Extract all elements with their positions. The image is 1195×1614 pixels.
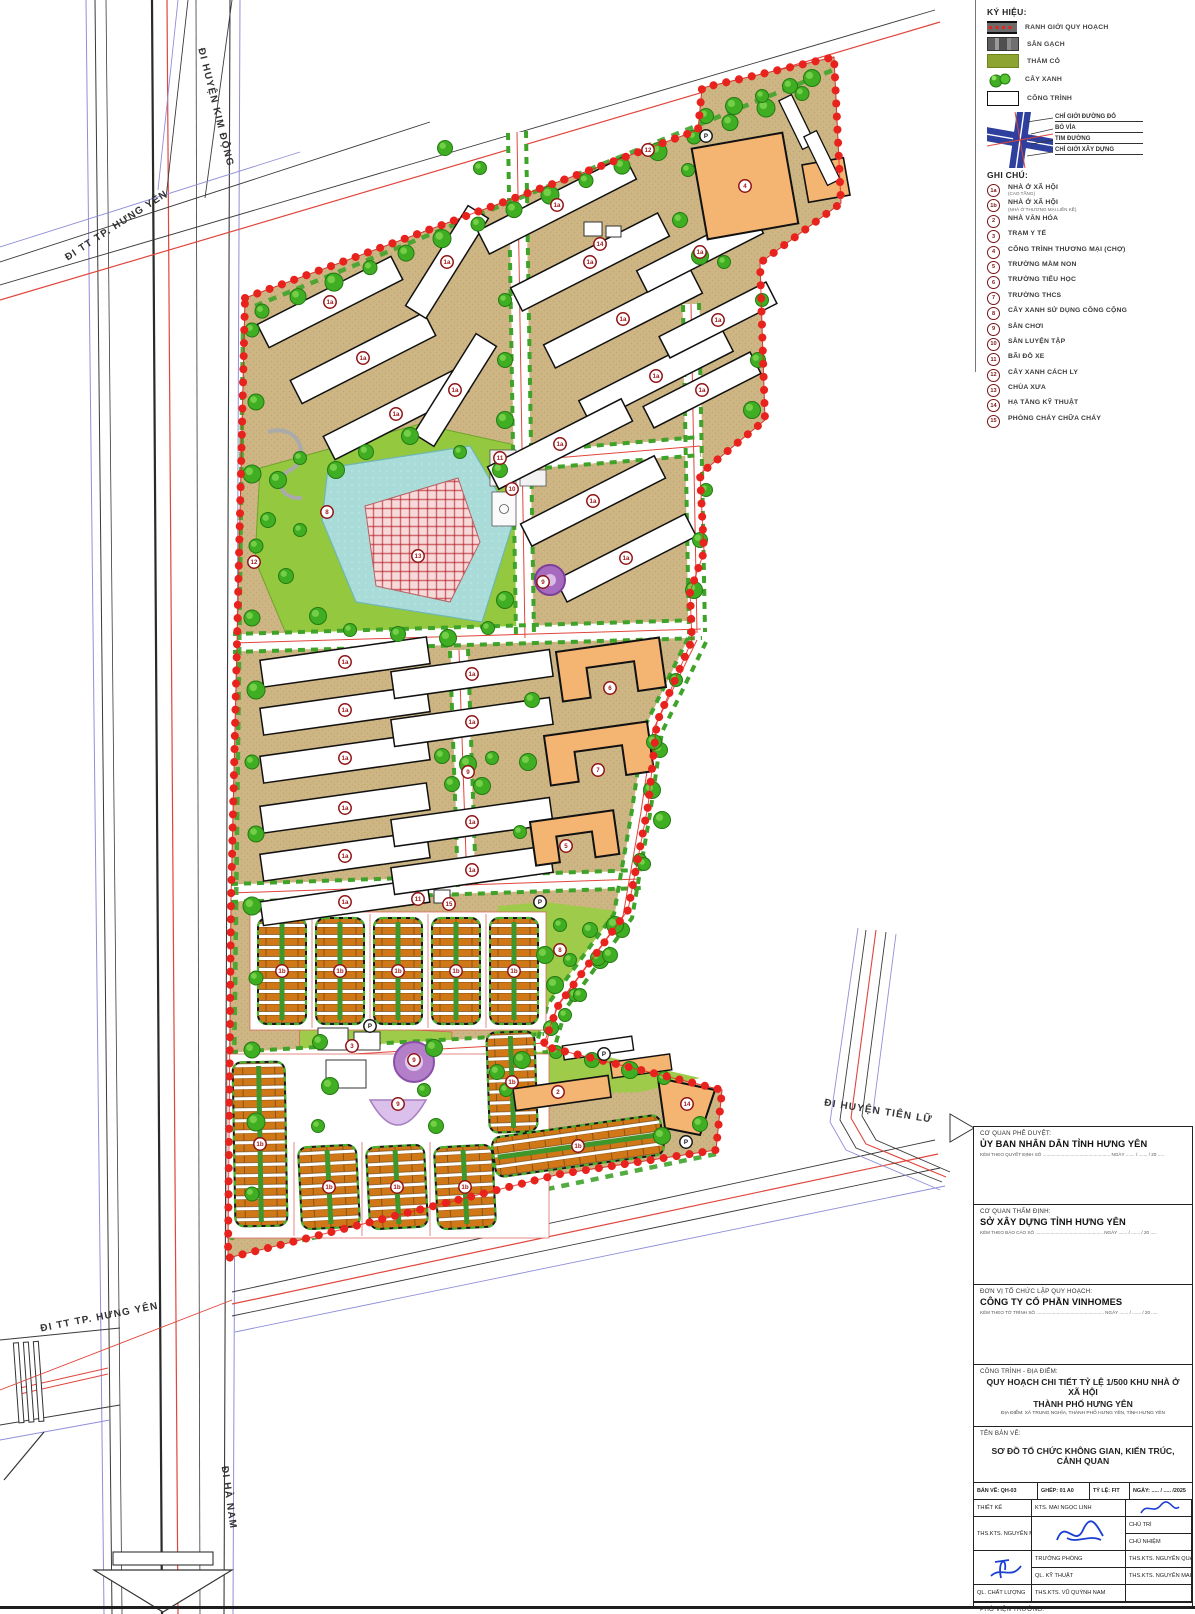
staff-table: THIẾT KẾ KTS. MAI NGỌC LINH CHỦ TRÌ THS.… — [974, 1500, 1192, 1603]
signature-icon — [1137, 1501, 1181, 1516]
map-marker: 1a — [620, 552, 632, 564]
plan-sheet: 1b1b1b1b1b1b1b1b1b1b1b1a1a1a1a1a1a1a1a1a… — [0, 0, 1195, 1614]
svg-text:1a: 1a — [715, 317, 722, 324]
legend-panel: KÝ HIỆU: RANH GIỚI QUY HOẠCHSÂN GẠCHTHẢM… — [975, 0, 1193, 372]
legend-item: RANH GIỚI QUY HOẠCH — [987, 21, 1193, 34]
meta-cell: BẢN VẼ: QH-03 — [974, 1483, 1038, 1499]
note-badge: 5 — [987, 261, 1000, 274]
legend-item-label: CÔNG TRÌNH — [1027, 95, 1072, 102]
map-marker: 8 — [321, 506, 333, 518]
svg-text:7: 7 — [596, 767, 600, 774]
note-badge: 12 — [987, 369, 1000, 382]
svg-text:1a: 1a — [699, 387, 706, 394]
svg-text:1a: 1a — [452, 387, 459, 394]
map-marker: 9 — [408, 1054, 420, 1066]
map-marker: 11 — [494, 452, 506, 464]
drawing-meta-row: BẢN VẼ: QH-03GHÉP: 01 A0TỶ LỆ: FITNGÀY: … — [974, 1483, 1192, 1500]
map-marker: 1a — [466, 716, 478, 728]
map-marker: 8 — [554, 944, 566, 956]
map-marker: P — [364, 1020, 376, 1032]
map-marker: 1b — [254, 1138, 266, 1150]
map-marker: 1a — [694, 246, 706, 258]
road-section-diagram: CHỈ GIỚI ĐƯỜNG ĐỎBÓ VỈATIM ĐƯỜNGCHỈ GIỚI… — [987, 112, 1193, 168]
drawing-heading: TÊN BẢN VẼ: — [980, 1430, 1186, 1437]
svg-text:12: 12 — [645, 147, 652, 154]
note-badge: 14 — [987, 399, 1000, 412]
grass-swatch-icon — [987, 54, 1019, 68]
signature-cell — [1126, 1500, 1192, 1517]
svg-text:8: 8 — [325, 509, 329, 516]
svg-text:1a: 1a — [342, 755, 349, 762]
svg-text:8: 8 — [558, 947, 562, 954]
legend-title: KÝ HIỆU: — [987, 7, 1193, 17]
map-marker: 10 — [506, 483, 518, 495]
staff-name: THS.KTS. NGUYỄN MAI PHƯƠNG — [1126, 1568, 1192, 1585]
svg-text:1b: 1b — [256, 1141, 263, 1148]
note-item: 4CÔNG TRÌNH THƯƠNG MẠI (CHỢ) — [987, 246, 1193, 259]
appraisal-note: KÈM THEO BÁO CÁO SỐ ....................… — [980, 1230, 1186, 1235]
svg-text:1a: 1a — [360, 355, 367, 362]
svg-text:1b: 1b — [574, 1143, 581, 1150]
map-marker: 12 — [248, 556, 260, 568]
svg-text:1b: 1b — [336, 968, 343, 975]
project-title-line2: THÀNH PHỐ HƯNG YÊN — [980, 1399, 1186, 1409]
legend-item: CÔNG TRÌNH — [987, 91, 1193, 106]
project-section: CÔNG TRÌNH - ĐỊA ĐIỂM: QUY HOẠCH CHI TIẾ… — [974, 1365, 1192, 1427]
approval-agency: ỦY BAN NHÂN DÂN TỈNH HƯNG YÊN — [980, 1139, 1186, 1149]
svg-text:1a: 1a — [590, 498, 597, 505]
svg-text:1b: 1b — [461, 1184, 468, 1191]
svg-text:1a: 1a — [342, 853, 349, 860]
svg-text:6: 6 — [608, 685, 612, 692]
svg-text:1b: 1b — [508, 1079, 515, 1086]
svg-text:1a: 1a — [623, 555, 630, 562]
sheet-bottom-border — [0, 1606, 1195, 1609]
signature-icon — [983, 1554, 1023, 1582]
legend-item-label: CÂY XANH — [1025, 76, 1062, 83]
intersection-label: BÓ VỈA — [1055, 125, 1143, 133]
signature-cell — [1126, 1585, 1192, 1602]
note-item: 15PHÒNG CHÁY CHỮA CHÁY — [987, 415, 1193, 428]
svg-text:1a: 1a — [469, 671, 476, 678]
map-marker: P — [700, 130, 712, 142]
staff-role: CHỦ TRÌ — [1126, 1517, 1192, 1534]
note-label: TRƯỜNG TIỂU HỌC — [1008, 276, 1076, 283]
staff-name: KTS. MAI NGỌC LINH — [1032, 1500, 1126, 1517]
brick-swatch-icon — [987, 37, 1019, 51]
svg-text:1b: 1b — [325, 1184, 332, 1191]
svg-text:1a: 1a — [620, 316, 627, 323]
svg-text:1a: 1a — [469, 867, 476, 874]
legend-items: RANH GIỚI QUY HOẠCHSÂN GẠCHTHẢM CỎCÂY XA… — [987, 21, 1193, 106]
note-badge: 8 — [987, 307, 1000, 320]
svg-text:2: 2 — [556, 1089, 560, 1096]
staff-name: THS.KTS. VŨ QUỲNH NAM — [1032, 1585, 1126, 1602]
svg-text:1a: 1a — [342, 707, 349, 714]
svg-text:15: 15 — [446, 901, 453, 908]
note-item: 1bNHÀ Ở XÃ HỘI(NHÀ Ở THƯƠNG MẠI LIỀN KỀ) — [987, 199, 1193, 212]
note-badge: 9 — [987, 323, 1000, 336]
svg-text:P: P — [602, 1051, 606, 1058]
svg-text:11: 11 — [497, 455, 504, 462]
svg-text:4: 4 — [743, 183, 747, 190]
map-marker: 1a — [584, 256, 596, 268]
map-marker: 1a — [339, 752, 351, 764]
organizer-section: ĐƠN VỊ TỔ CHỨC LẬP QUY HOẠCH: CÔNG TY CỔ… — [974, 1285, 1192, 1365]
map-marker: 1a — [617, 313, 629, 325]
project-heading: CÔNG TRÌNH - ĐỊA ĐIỂM: — [980, 1368, 1186, 1375]
note-item: 6TRƯỜNG TIỂU HỌC — [987, 276, 1193, 289]
svg-text:12: 12 — [251, 559, 258, 566]
note-item: 9SÂN CHƠI — [987, 323, 1193, 336]
note-label: HẠ TẦNG KỸ THUẬT — [1008, 399, 1078, 406]
note-item: 12CÂY XANH CÁCH LY — [987, 369, 1193, 382]
note-item: 1aNHÀ Ở XÃ HỘI(CAO TẦNG) — [987, 184, 1193, 197]
map-marker: 1a — [339, 802, 351, 814]
title-block: CƠ QUAN PHÊ DUYỆT: ỦY BAN NHÂN DÂN TỈNH … — [973, 1126, 1193, 1608]
svg-text:14: 14 — [684, 1101, 691, 1108]
note-item: 11BÃI ĐỖ XE — [987, 353, 1193, 366]
staff-role: CHỦ NHIỆM — [1126, 1534, 1192, 1551]
staff-role: QL. KỸ THUẬT — [1032, 1568, 1126, 1585]
appraisal-heading: CƠ QUAN THẨM ĐỊNH: — [980, 1208, 1186, 1215]
map-marker: 9 — [462, 766, 474, 778]
svg-text:1b: 1b — [510, 968, 517, 975]
svg-text:P: P — [684, 1139, 688, 1146]
map-marker: 13 — [412, 550, 424, 562]
note-label: CÔNG TRÌNH THƯƠNG MẠI (CHỢ) — [1008, 246, 1125, 253]
svg-text:1b: 1b — [393, 1184, 400, 1191]
note-badge: 7 — [987, 292, 1000, 305]
svg-text:1a: 1a — [342, 805, 349, 812]
map-marker: 1a — [324, 296, 336, 308]
staff-name: THS.KTS. NGUYỄN MẠNH CƯỜNG — [974, 1517, 1032, 1551]
note-item: 5TRƯỜNG MẦM NON — [987, 261, 1193, 274]
intersection-label: TIM ĐƯỜNG — [1055, 136, 1143, 144]
approval-section: CƠ QUAN PHÊ DUYỆT: ỦY BAN NHÂN DÂN TỈNH … — [974, 1127, 1192, 1205]
map-marker: 3 — [346, 1040, 358, 1052]
note-badge: 6 — [987, 276, 1000, 289]
map-marker: 12 — [642, 144, 654, 156]
svg-text:11: 11 — [415, 896, 422, 903]
note-label: SÂN LUYỆN TẬP — [1008, 338, 1065, 345]
svg-text:1a: 1a — [554, 202, 561, 209]
note-label: CÂY XANH SỬ DỤNG CÔNG CỘNG — [1008, 307, 1127, 314]
svg-text:P: P — [704, 133, 708, 140]
svg-text:1a: 1a — [327, 299, 334, 306]
map-marker: 4 — [739, 180, 751, 192]
map-marker: 1b — [276, 965, 288, 977]
legend-item-label: SÂN GẠCH — [1027, 41, 1065, 48]
note-item: 7TRƯỜNG THCS — [987, 292, 1193, 305]
svg-text:9: 9 — [541, 579, 545, 586]
map-marker: 2 — [552, 1086, 564, 1098]
notes-list: 1aNHÀ Ở XÃ HỘI(CAO TẦNG)1bNHÀ Ở XÃ HỘI(N… — [987, 184, 1193, 428]
map-marker: 1a — [466, 816, 478, 828]
building-swatch-icon — [987, 91, 1019, 106]
note-label: TRƯỜNG THCS — [1008, 292, 1061, 299]
notes-title: GHI CHÚ: — [987, 170, 1193, 180]
svg-text:1b: 1b — [452, 968, 459, 975]
map-marker: 1b — [572, 1140, 584, 1152]
note-item: 14HẠ TẦNG KỸ THUẬT — [987, 399, 1193, 412]
map-marker: 1a — [339, 704, 351, 716]
project-title-line1: QUY HOẠCH CHI TIẾT TỶ LỆ 1/500 KHU NHÀ Ở… — [980, 1377, 1186, 1397]
appraisal-section: CƠ QUAN THẨM ĐỊNH: SỞ XÂY DỰNG TỈNH HƯNG… — [974, 1205, 1192, 1285]
organizer-heading: ĐƠN VỊ TỔ CHỨC LẬP QUY HOẠCH: — [980, 1288, 1186, 1295]
map-marker: 1b — [391, 1181, 403, 1193]
note-badge: 1b — [987, 199, 1000, 212]
organizer-company: CÔNG TY CỔ PHẦN VINHOMES — [980, 1297, 1186, 1307]
drawing-section: TÊN BẢN VẼ: SƠ ĐỒ TỔ CHỨC KHÔNG GIAN, KI… — [974, 1427, 1192, 1483]
svg-text:1b: 1b — [278, 968, 285, 975]
map-marker: 1a — [587, 495, 599, 507]
note-label: TRẠM Y TẾ — [1008, 230, 1046, 237]
map-marker: P — [680, 1136, 692, 1148]
svg-text:9: 9 — [412, 1057, 416, 1064]
note-sublabel: (CAO TẦNG) — [1008, 191, 1058, 196]
map-marker: 11 — [412, 893, 424, 905]
note-item: 3TRẠM Y TẾ — [987, 230, 1193, 243]
meta-cell: TỶ LỆ: FIT — [1090, 1483, 1130, 1499]
map-marker: 7 — [592, 764, 604, 776]
map-marker: 1b — [392, 965, 404, 977]
intersection-label: CHỈ GIỚI XÂY DỰNG — [1055, 147, 1143, 155]
svg-text:1a: 1a — [469, 819, 476, 826]
note-badge: 11 — [987, 353, 1000, 366]
map-marker: 1b — [334, 965, 346, 977]
map-marker: 6 — [604, 682, 616, 694]
svg-text:1a: 1a — [697, 249, 704, 256]
map-marker: 1a — [449, 384, 461, 396]
map-marker: 1a — [339, 656, 351, 668]
organizer-note: KÈM THEO TỜ TRÌNH SỐ ...................… — [980, 1310, 1186, 1315]
map-marker: 1b — [506, 1076, 518, 1088]
note-label: SÂN CHƠI — [1008, 323, 1043, 330]
map-marker: 1a — [339, 896, 351, 908]
svg-text:1a: 1a — [393, 411, 400, 418]
map-marker: 1a — [441, 256, 453, 268]
note-label: CHÙA XƯA — [1008, 384, 1046, 391]
approval-heading: CƠ QUAN PHÊ DUYỆT: — [980, 1130, 1186, 1137]
svg-text:13: 13 — [415, 553, 422, 560]
map-marker: 1b — [323, 1181, 335, 1193]
map-marker: 5 — [560, 840, 572, 852]
svg-text:P: P — [538, 899, 542, 906]
map-marker: 1a — [650, 370, 662, 382]
svg-text:10: 10 — [509, 486, 516, 493]
note-item: 2NHÀ VĂN HÓA — [987, 215, 1193, 228]
note-label: TRƯỜNG MẦM NON — [1008, 261, 1077, 268]
staff-role: TRƯỞNG PHÒNG — [1032, 1551, 1126, 1568]
road-label: ĐI TT TP. HƯNG YÊN — [39, 1299, 159, 1335]
svg-text:14: 14 — [597, 241, 604, 248]
road-label: ĐI HUYỆN KIM ĐỘNG — [195, 46, 237, 168]
svg-text:P: P — [368, 1023, 372, 1030]
approval-note: KÈM THEO QUYẾT ĐỊNH SỐ .................… — [980, 1152, 1186, 1157]
svg-text:1a: 1a — [342, 659, 349, 666]
intersection-icon — [987, 112, 1053, 168]
note-label: NHÀ VĂN HÓA — [1008, 215, 1058, 222]
note-badge: 15 — [987, 415, 1000, 428]
note-badge: 13 — [987, 384, 1000, 397]
note-item: 10SÂN LUYỆN TẬP — [987, 338, 1193, 351]
svg-text:1a: 1a — [444, 259, 451, 266]
map-marker: 1b — [450, 965, 462, 977]
note-sublabel: (NHÀ Ở THƯƠNG MẠI LIỀN KỀ) — [1008, 207, 1076, 212]
signature-cell — [1032, 1517, 1126, 1551]
trees-swatch-icon — [987, 71, 1017, 88]
note-badge: 3 — [987, 230, 1000, 243]
svg-text:1a: 1a — [342, 899, 349, 906]
svg-text:1a: 1a — [557, 441, 564, 448]
staff-name: THS.KTS. NGUYỄN QUANG HUY — [1126, 1551, 1192, 1568]
svg-text:3: 3 — [350, 1043, 354, 1050]
legend-item: CÂY XANH — [987, 71, 1193, 88]
note-label: NHÀ Ở XÃ HỘI — [1008, 199, 1076, 206]
road-label: ĐI HUYỆN TIÊN LỮ — [823, 1096, 933, 1126]
map-marker: 1b — [508, 965, 520, 977]
map-marker: 14 — [681, 1098, 693, 1110]
svg-text:9: 9 — [396, 1101, 400, 1108]
map-marker: 1a — [712, 314, 724, 326]
note-badge: 1a — [987, 184, 1000, 197]
svg-text:1b: 1b — [394, 968, 401, 975]
note-label: PHÒNG CHÁY CHỮA CHÁY — [1008, 415, 1101, 422]
map-marker: 14 — [594, 238, 606, 250]
svg-text:9: 9 — [466, 769, 470, 776]
svg-text:1a: 1a — [653, 373, 660, 380]
map-marker: 1a — [466, 668, 478, 680]
legend-item-label: THẢM CỎ — [1027, 58, 1060, 65]
svg-text:5: 5 — [564, 843, 568, 850]
project-location: ĐỊA ĐIỂM: XÃ TRUNG NGHĨA, THÀNH PHỐ HƯNG… — [980, 1411, 1186, 1416]
map-marker: 1a — [554, 438, 566, 450]
titleblock-pennant — [950, 1114, 974, 1142]
note-badge: 4 — [987, 246, 1000, 259]
map-marker: 1a — [466, 864, 478, 876]
map-marker: 9 — [392, 1098, 404, 1110]
map-marker: 9 — [537, 576, 549, 588]
signature-cell — [974, 1551, 1032, 1585]
meta-cell: NGÀY: ..... / ..... /2025 — [1130, 1483, 1192, 1499]
appraisal-agency: SỞ XÂY DỰNG TỈNH HƯNG YÊN — [980, 1217, 1186, 1227]
svg-text:1a: 1a — [587, 259, 594, 266]
map-marker: 1a — [551, 199, 563, 211]
map-marker: P — [598, 1048, 610, 1060]
note-badge: 10 — [987, 338, 1000, 351]
road-label: ĐI HÀ NAM — [219, 1465, 241, 1530]
staff-role: QL. CHẤT LƯỢNG — [974, 1585, 1032, 1602]
map-marker: 1b — [459, 1181, 471, 1193]
meta-cell: GHÉP: 01 A0 — [1038, 1483, 1090, 1499]
legend-item-label: RANH GIỚI QUY HOẠCH — [1025, 24, 1109, 31]
note-badge: 2 — [987, 215, 1000, 228]
staff-role: THIẾT KẾ — [974, 1500, 1032, 1517]
note-label: CÂY XANH CÁCH LY — [1008, 369, 1078, 376]
note-label: BÃI ĐỖ XE — [1008, 353, 1045, 360]
legend-item: SÂN GẠCH — [987, 37, 1193, 51]
signature-icon — [1053, 1520, 1105, 1548]
note-item: 13CHÙA XƯA — [987, 384, 1193, 397]
drawing-name: SƠ ĐỒ TỔ CHỨC KHÔNG GIAN, KIẾN TRÚC, CẢN… — [980, 1446, 1186, 1466]
map-marker: 15 — [443, 898, 455, 910]
boundary-swatch-icon — [987, 21, 1017, 34]
svg-text:1a: 1a — [469, 719, 476, 726]
intersection-label: CHỈ GIỚI ĐƯỜNG ĐỎ — [1055, 114, 1143, 122]
intersection-labels: CHỈ GIỚI ĐƯỜNG ĐỎBÓ VỈATIM ĐƯỜNGCHỈ GIỚI… — [1055, 114, 1143, 168]
note-item: 8CÂY XANH SỬ DỤNG CÔNG CỘNG — [987, 307, 1193, 320]
map-marker: 1a — [390, 408, 402, 420]
map-marker: P — [534, 896, 546, 908]
legend-item: THẢM CỎ — [987, 54, 1193, 68]
map-marker: 1a — [339, 850, 351, 862]
map-marker: 1a — [696, 384, 708, 396]
map-marker: 1a — [357, 352, 369, 364]
